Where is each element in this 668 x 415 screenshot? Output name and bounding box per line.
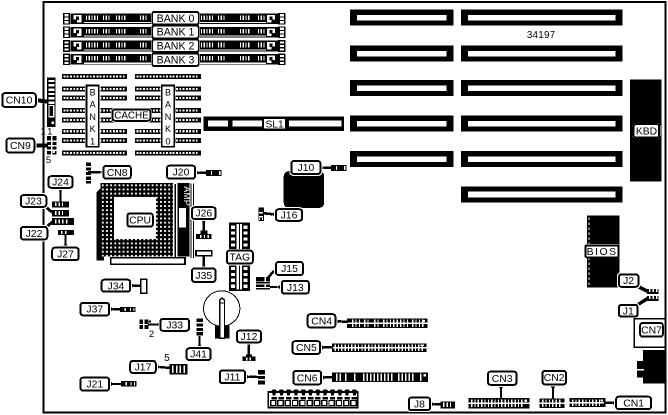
svg-text:J16: J16: [281, 211, 298, 222]
svg-text:5: 5: [46, 155, 51, 166]
svg-text:B: B: [90, 88, 96, 98]
svg-text:J20: J20: [173, 168, 190, 179]
svg-text:CN5: CN5: [296, 343, 317, 354]
svg-text:CN2: CN2: [544, 373, 565, 384]
svg-text:J41: J41: [190, 350, 207, 361]
svg-text:CN3: CN3: [492, 374, 513, 385]
svg-text:5: 5: [164, 353, 170, 364]
svg-text:CN10: CN10: [6, 96, 33, 107]
svg-text:SL1: SL1: [266, 119, 284, 130]
svg-text:J37: J37: [86, 305, 103, 316]
svg-text:BANK 0: BANK 0: [157, 13, 195, 25]
svg-text:J35: J35: [195, 271, 212, 282]
svg-text:J33: J33: [166, 320, 183, 331]
svg-text:BIOS: BIOS: [587, 247, 618, 258]
svg-text:J12: J12: [241, 332, 258, 343]
svg-text:CN7: CN7: [641, 325, 662, 336]
svg-text:2: 2: [149, 329, 154, 340]
svg-text:BANK 3: BANK 3: [157, 54, 195, 66]
svg-text:J2: J2: [623, 276, 634, 287]
svg-text:J24: J24: [52, 178, 69, 189]
svg-text:CN6: CN6: [297, 373, 318, 384]
svg-text:CN4: CN4: [311, 316, 332, 327]
svg-text:AMP: AMP: [182, 186, 192, 206]
svg-text:J1: J1: [623, 306, 634, 317]
svg-text:KBD: KBD: [636, 126, 657, 137]
svg-text:J22: J22: [26, 229, 43, 240]
svg-text:CN9: CN9: [10, 141, 31, 152]
svg-text:N: N: [89, 112, 96, 122]
svg-text:0: 0: [165, 136, 170, 146]
svg-text:A: A: [90, 100, 96, 110]
svg-text:J34: J34: [108, 281, 125, 292]
svg-text:J17: J17: [135, 363, 152, 374]
svg-text:1: 1: [47, 127, 52, 138]
svg-text:N: N: [165, 112, 172, 122]
svg-text:J10: J10: [298, 163, 315, 174]
svg-text:1: 1: [90, 136, 95, 146]
svg-text:CPU: CPU: [129, 216, 151, 227]
svg-text:K: K: [165, 124, 171, 134]
svg-text:BANK 1: BANK 1: [157, 27, 195, 39]
svg-text:1: 1: [40, 127, 45, 138]
svg-text:CN8: CN8: [107, 168, 128, 179]
svg-text:A: A: [165, 100, 171, 110]
svg-text:34197: 34197: [527, 30, 556, 41]
svg-text:J11: J11: [224, 372, 240, 383]
svg-text:J23: J23: [25, 197, 42, 208]
svg-text:B: B: [165, 88, 171, 98]
svg-text:J26: J26: [195, 209, 212, 220]
svg-text:CN1: CN1: [623, 399, 644, 410]
svg-text:J15: J15: [281, 264, 298, 275]
svg-text:J13: J13: [287, 283, 304, 294]
svg-text:BANK 2: BANK 2: [157, 41, 195, 53]
svg-text:J27: J27: [57, 250, 74, 261]
svg-text:J8: J8: [414, 400, 425, 411]
svg-text:TAG: TAG: [230, 253, 251, 264]
svg-text:K: K: [90, 124, 96, 134]
svg-text:J21: J21: [86, 380, 103, 391]
svg-text:CACHE: CACHE: [114, 111, 149, 122]
